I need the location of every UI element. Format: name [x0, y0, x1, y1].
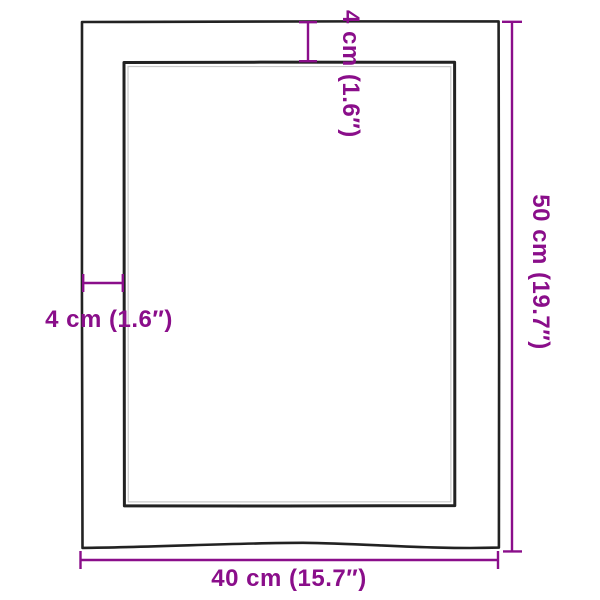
height-label: 50 cm (19.7″)	[527, 194, 554, 349]
left-thickness-dimension-line	[83, 274, 123, 292]
top-thickness-label: 4 cm (1.6″)	[337, 10, 364, 138]
inner-panel-bevel	[128, 67, 451, 502]
outer-frame-outline	[82, 21, 499, 548]
inner-panel-outline	[124, 62, 455, 506]
dimension-diagram: 4 cm (1.6″) 4 cm (1.6″) 50 cm (19.7″) 40…	[0, 0, 600, 600]
height-dimension-line	[502, 22, 522, 552]
dimension-figure-svg: 4 cm (1.6″) 4 cm (1.6″) 50 cm (19.7″) 40…	[0, 0, 600, 600]
left-thickness-label: 4 cm (1.6″)	[45, 306, 173, 333]
top-thickness-dimension-line	[299, 22, 317, 61]
width-label: 40 cm (15.7″)	[211, 565, 366, 592]
